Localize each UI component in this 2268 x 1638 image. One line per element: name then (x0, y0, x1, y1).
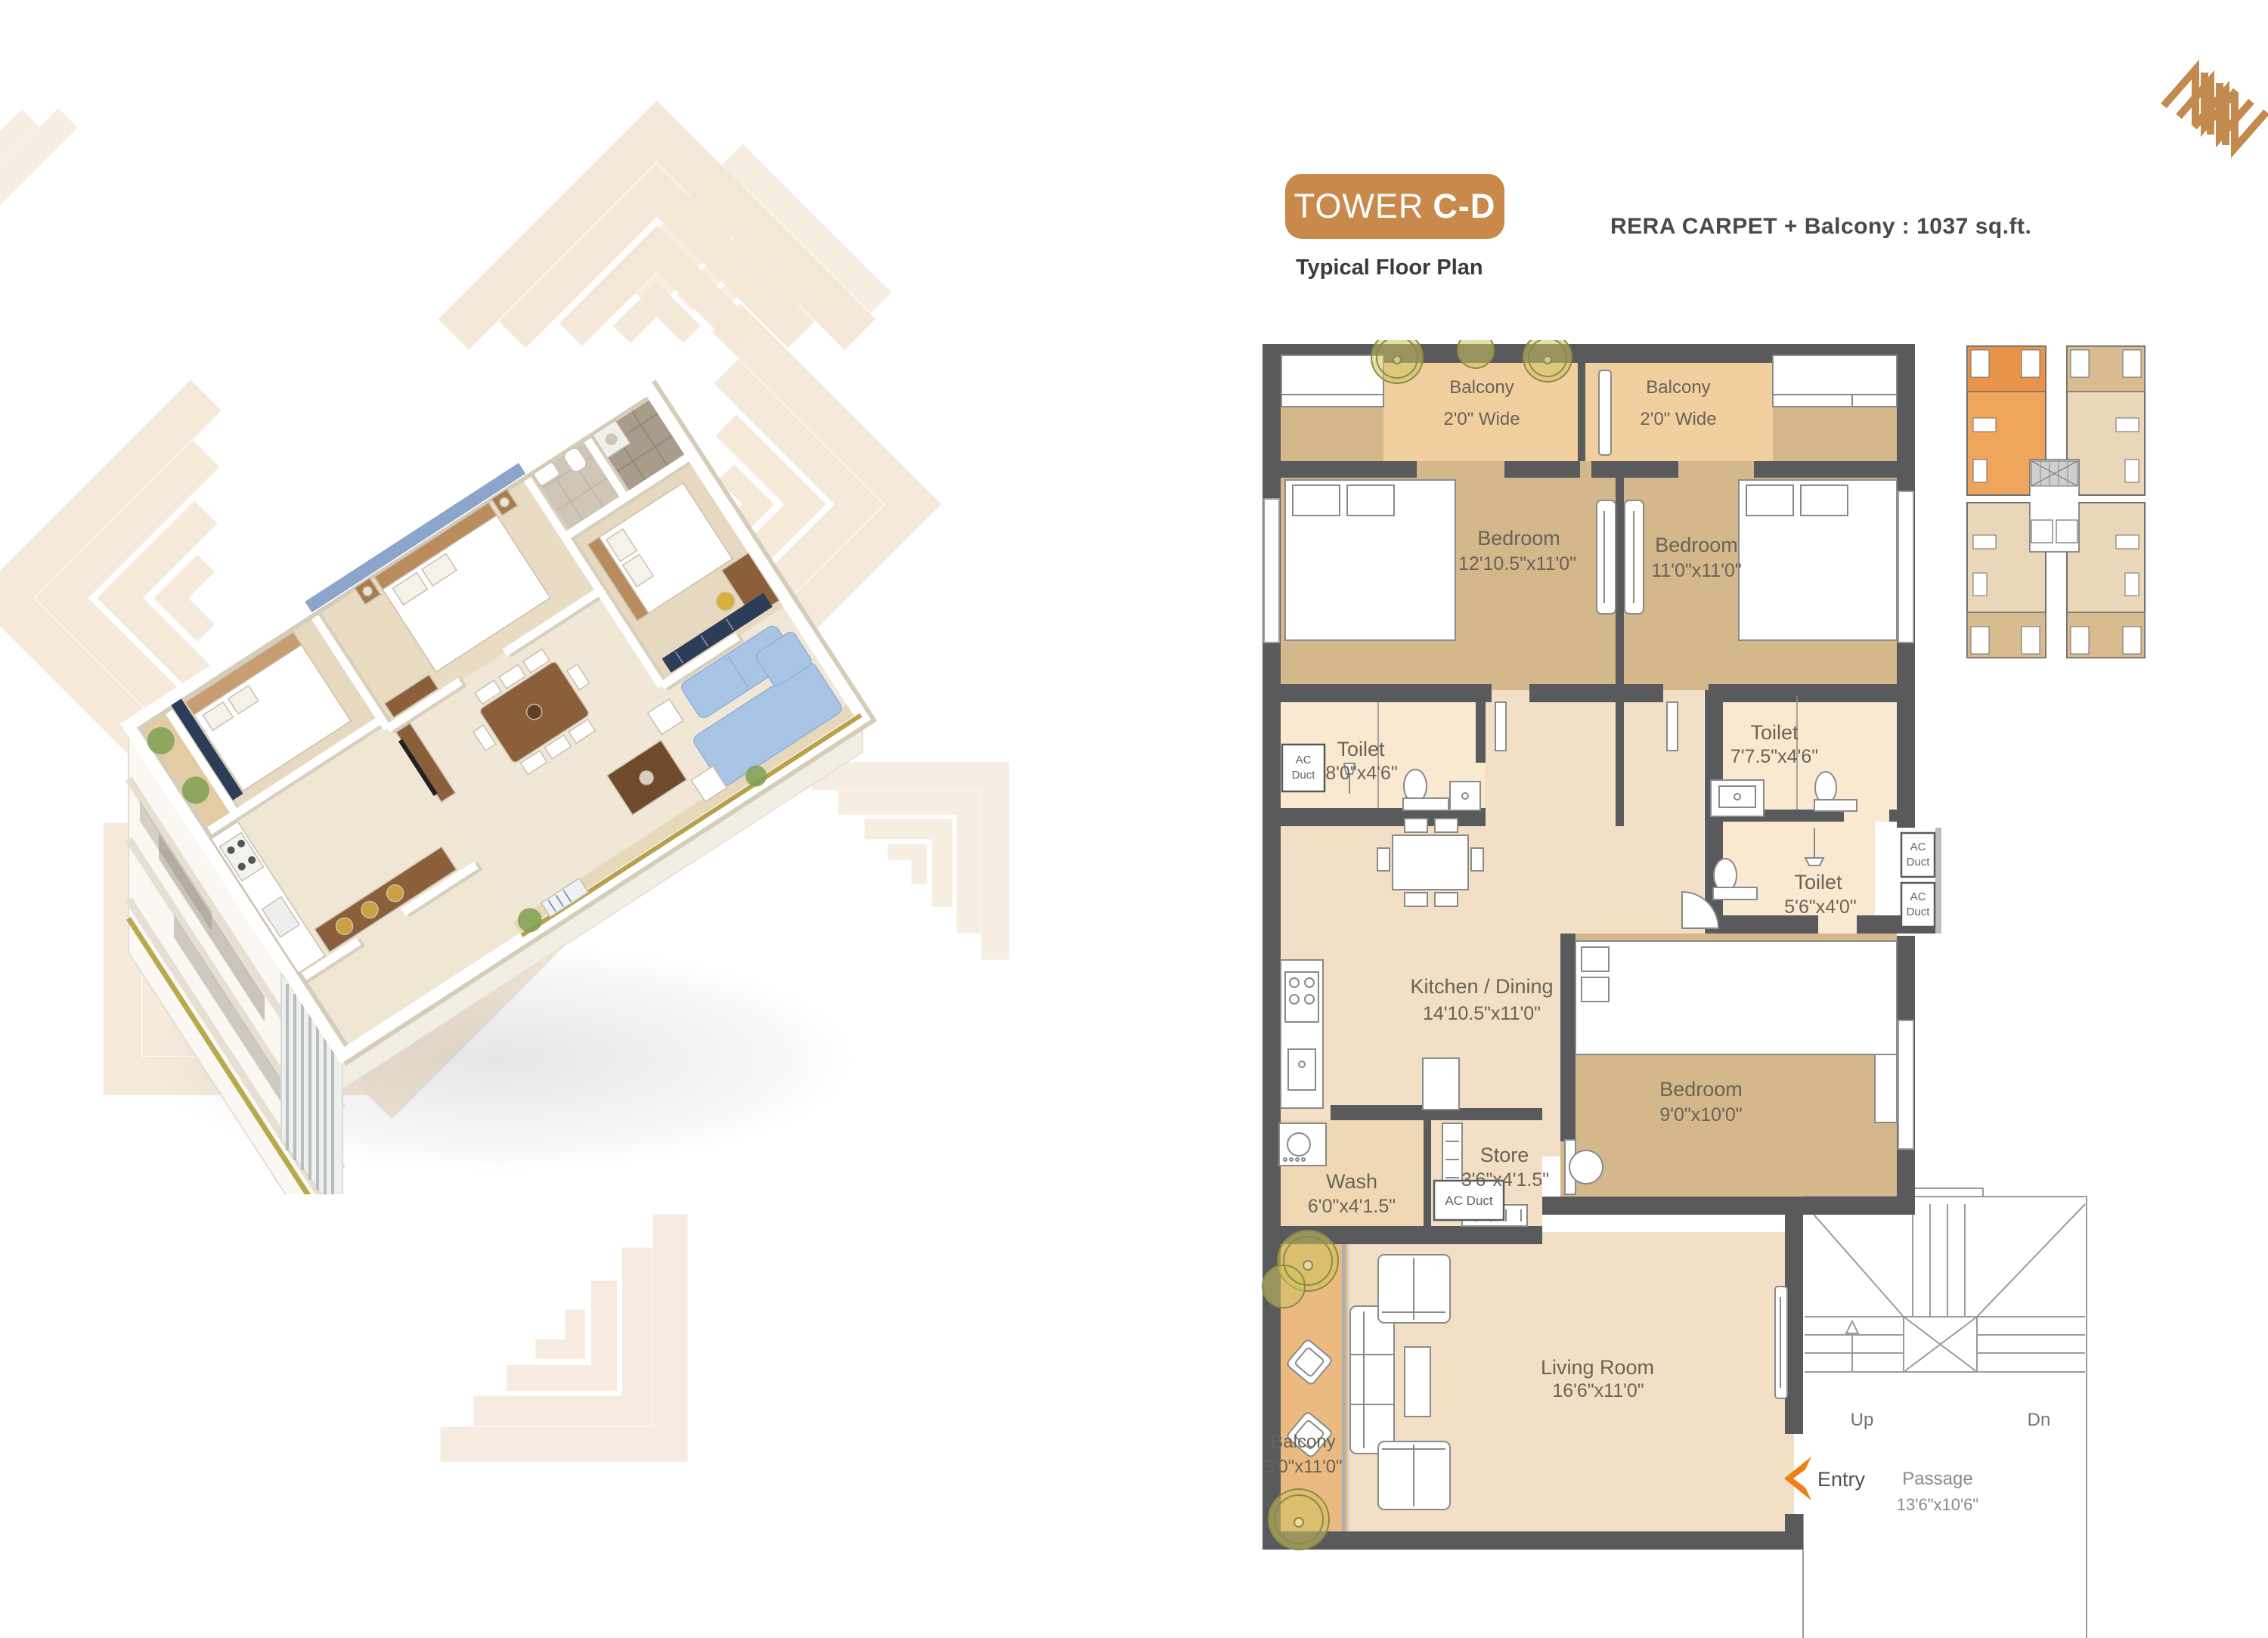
svg-text:Toilet: Toilet (1337, 738, 1385, 760)
passage-dims: 13'6"x10'6" (1897, 1495, 1978, 1514)
svg-text:16'6"x11'0": 16'6"x11'0" (1552, 1380, 1644, 1401)
svg-text:Balcony: Balcony (1271, 1432, 1335, 1452)
svg-text:Kitchen / Dining: Kitchen / Dining (1410, 975, 1553, 998)
svg-text:Balcony: Balcony (1449, 377, 1514, 398)
svg-text:2'0" Wide: 2'0" Wide (1443, 409, 1520, 429)
svg-text:Toilet: Toilet (1794, 871, 1842, 893)
stairs-up-label: Up (1851, 1410, 1874, 1430)
svg-text:9'0"x10'0": 9'0"x10'0" (1659, 1104, 1742, 1126)
svg-text:AC: AC (1910, 841, 1926, 853)
svg-text:Duct: Duct (1292, 769, 1316, 782)
area-note: RERA CARPET + Balcony : 1037 sq.ft. (1610, 214, 2031, 240)
entry-label: Entry (1817, 1468, 1866, 1491)
svg-text:12'10.5"x11'0": 12'10.5"x11'0" (1458, 553, 1576, 574)
svg-text:11'0"x11'0": 11'0"x11'0" (1651, 560, 1742, 581)
passage-label: Passage (1902, 1469, 1972, 1489)
plan-subtitle: Typical Floor Plan (1296, 255, 1483, 280)
svg-text:Balcony: Balcony (1646, 377, 1710, 398)
svg-text:AC Duct: AC Duct (1445, 1194, 1493, 1208)
svg-text:Wash: Wash (1326, 1170, 1377, 1193)
floor-plan-2d: Up Dn Passage 13'6"x10'6" (1255, 340, 2268, 1638)
tower-title-pill: TOWER C-D (1285, 174, 1504, 239)
svg-text:Bedroom: Bedroom (1477, 527, 1560, 550)
key-plan (1967, 346, 2145, 658)
tower-title-bold: C-D (1433, 187, 1495, 226)
page: TOWER C-D Typical Floor Plan RERA CARPET… (0, 0, 2268, 1638)
svg-text:AC: AC (1910, 890, 1926, 903)
svg-text:Store: Store (1480, 1144, 1529, 1166)
svg-text:Duct: Duct (1907, 856, 1931, 869)
svg-text:AC: AC (1296, 754, 1312, 766)
svg-text:Duct: Duct (1907, 906, 1931, 918)
svg-text:Bedroom: Bedroom (1659, 1078, 1743, 1101)
svg-text:3'0"x11'0": 3'0"x11'0" (1264, 1457, 1342, 1477)
iso-render-3d (15, 197, 907, 1194)
tower-title-light: TOWER (1294, 187, 1424, 226)
stairs-dn-label: Dn (2028, 1410, 2051, 1430)
svg-text:6'0"x4'1.5": 6'0"x4'1.5" (1308, 1196, 1396, 1217)
svg-text:Living Room: Living Room (1541, 1356, 1654, 1379)
svg-text:Bedroom: Bedroom (1655, 534, 1738, 556)
brand-logo (2155, 30, 2268, 166)
svg-text:2'0" Wide: 2'0" Wide (1640, 409, 1716, 429)
svg-text:Toilet: Toilet (1750, 721, 1799, 744)
svg-text:7'7.5"x4'6": 7'7.5"x4'6" (1730, 746, 1818, 767)
svg-text:8'0"x4'6": 8'0"x4'6" (1325, 763, 1397, 784)
svg-text:5'6"x4'0": 5'6"x4'0" (1784, 896, 1856, 918)
svg-text:3'6"x4'1.5": 3'6"x4'1.5" (1461, 1169, 1549, 1191)
svg-text:14'10.5"x11'0": 14'10.5"x11'0" (1423, 1003, 1541, 1024)
